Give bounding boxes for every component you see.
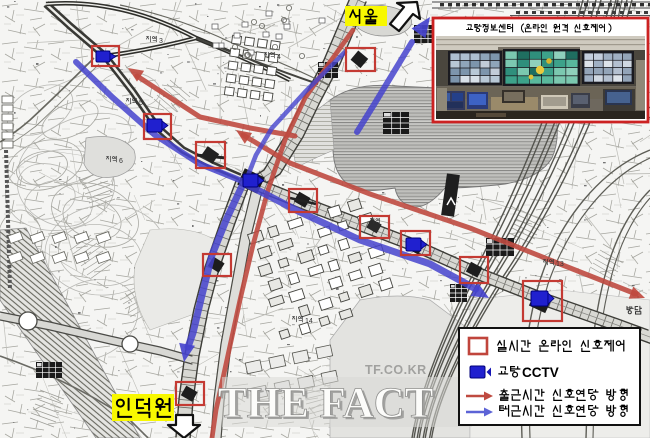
- svg-text:14: 14: [305, 318, 313, 325]
- svg-text:6: 6: [119, 158, 123, 165]
- svg-text:TF.CO.KR: TF.CO.KR: [365, 363, 427, 377]
- svg-text:13: 13: [556, 261, 564, 268]
- svg-text:3: 3: [159, 38, 163, 45]
- svg-text:4: 4: [277, 54, 281, 61]
- svg-text:5: 5: [139, 100, 143, 107]
- svg-text:THE FACT: THE FACT: [218, 380, 434, 427]
- svg-text:CCTV: CCTV: [522, 365, 559, 380]
